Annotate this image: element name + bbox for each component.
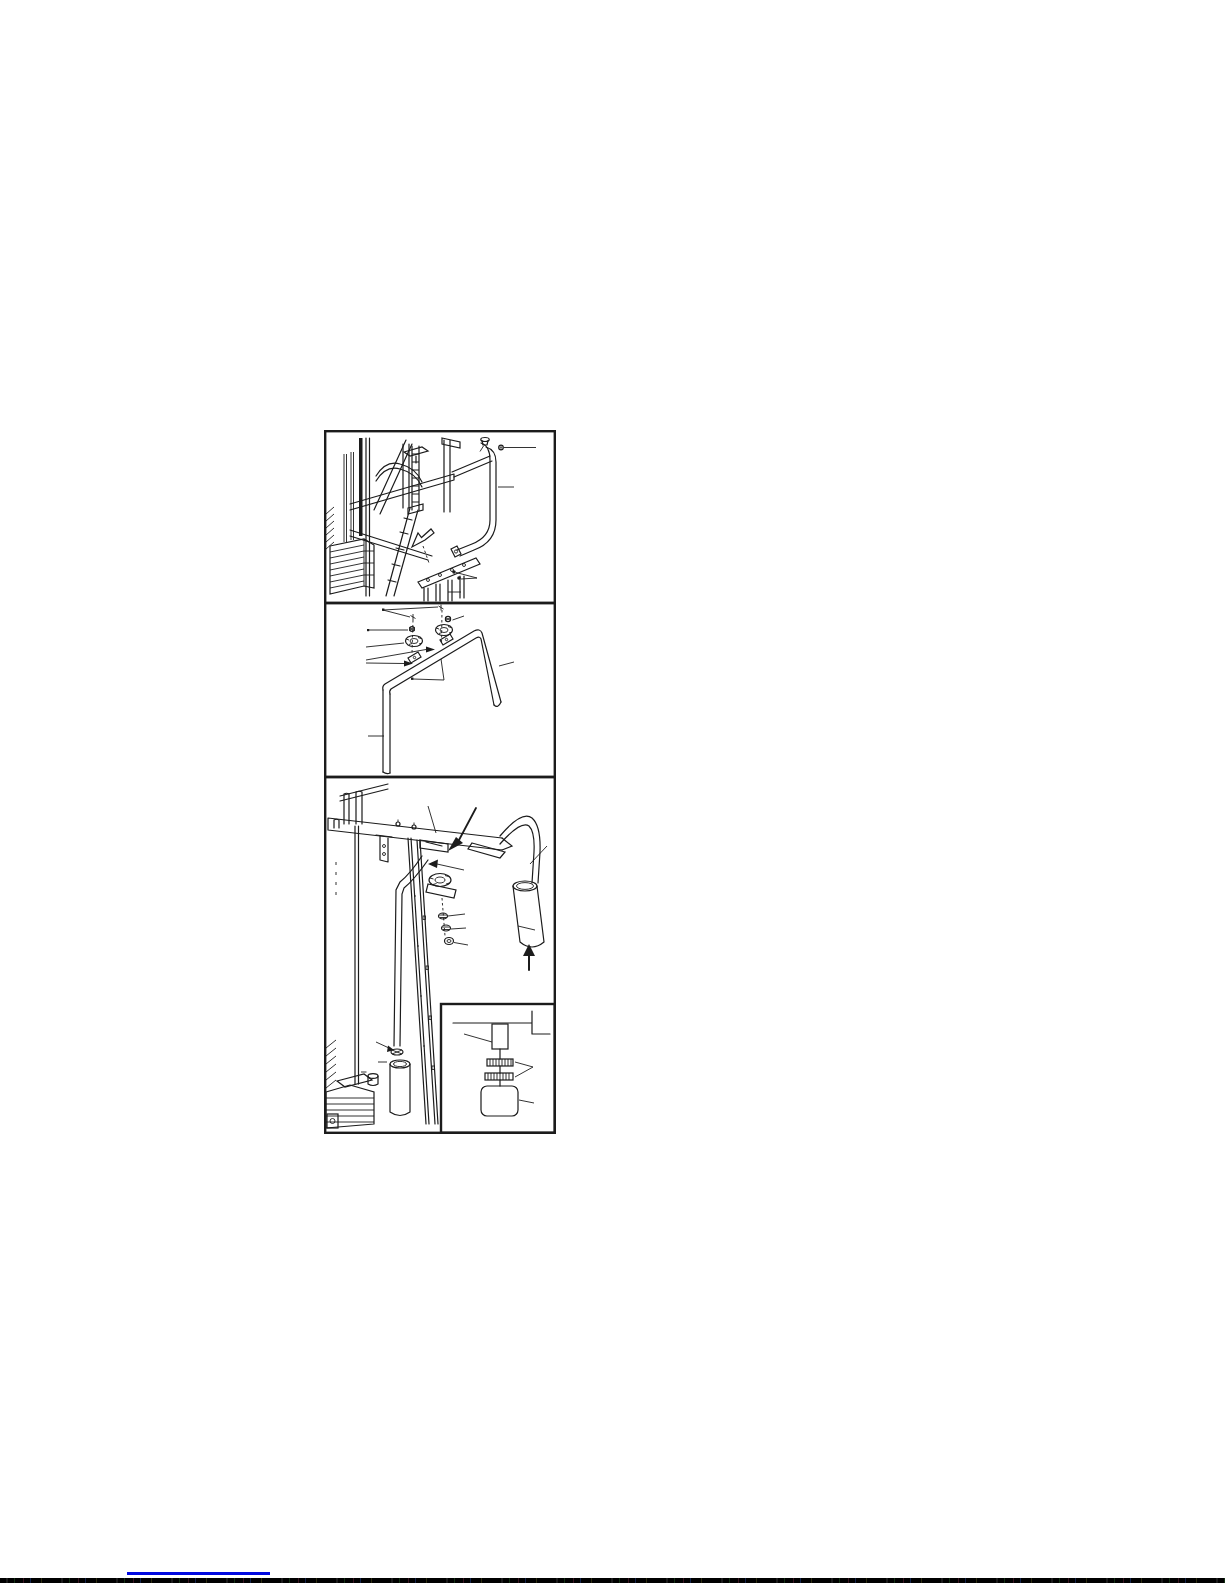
- footer-link-underline[interactable]: [127, 1572, 270, 1575]
- weight-pin-inset-box: [441, 1004, 555, 1133]
- handle-and-roller-pad: [500, 816, 547, 970]
- down-tube-and-bumper: [361, 856, 428, 1116]
- page-bottom-scan-line: [0, 1578, 1225, 1583]
- left-pulley-exploded: [406, 614, 423, 654]
- figure-column: [324, 430, 556, 1134]
- guide-rod: [355, 826, 359, 1084]
- callout-leaders: [366, 607, 514, 736]
- assembly-figure-1: [324, 430, 556, 604]
- u-bar-tube: [383, 630, 501, 774]
- mounting-bracket-callout: [412, 529, 480, 601]
- diagonal-upright-tubes: [408, 838, 438, 1124]
- assembly-figure-2: [324, 602, 556, 778]
- strap-bracket: [376, 835, 392, 862]
- weight-stack-bottom: [326, 1040, 374, 1128]
- assembly-figure-3: [324, 776, 556, 1134]
- curved-bracket-tube: [451, 443, 496, 557]
- weight-stack: [326, 507, 374, 594]
- manual-page: [0, 0, 1225, 1585]
- center-pulley-exploded: [426, 874, 468, 946]
